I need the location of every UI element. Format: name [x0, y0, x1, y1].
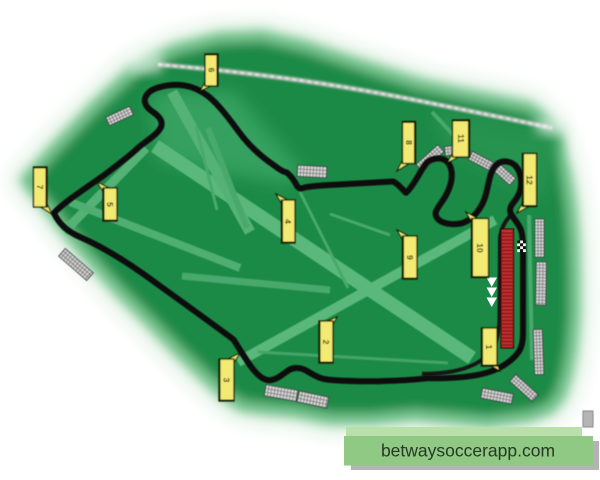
svg-text:2: 2	[321, 340, 331, 345]
svg-text:11: 11	[456, 134, 466, 143]
svg-text:5: 5	[105, 202, 115, 207]
svg-text:10: 10	[475, 243, 485, 253]
svg-text:9: 9	[405, 255, 415, 260]
svg-text:12: 12	[525, 175, 535, 185]
svg-text:8: 8	[404, 140, 414, 145]
svg-text:betwaysoccerapp.com: betwaysoccerapp.com	[381, 441, 555, 461]
svg-text:7: 7	[35, 185, 45, 190]
svg-text:4: 4	[283, 219, 293, 224]
svg-text:3: 3	[222, 378, 232, 383]
svg-text:1: 1	[484, 345, 494, 350]
svg-text:6: 6	[207, 68, 217, 73]
